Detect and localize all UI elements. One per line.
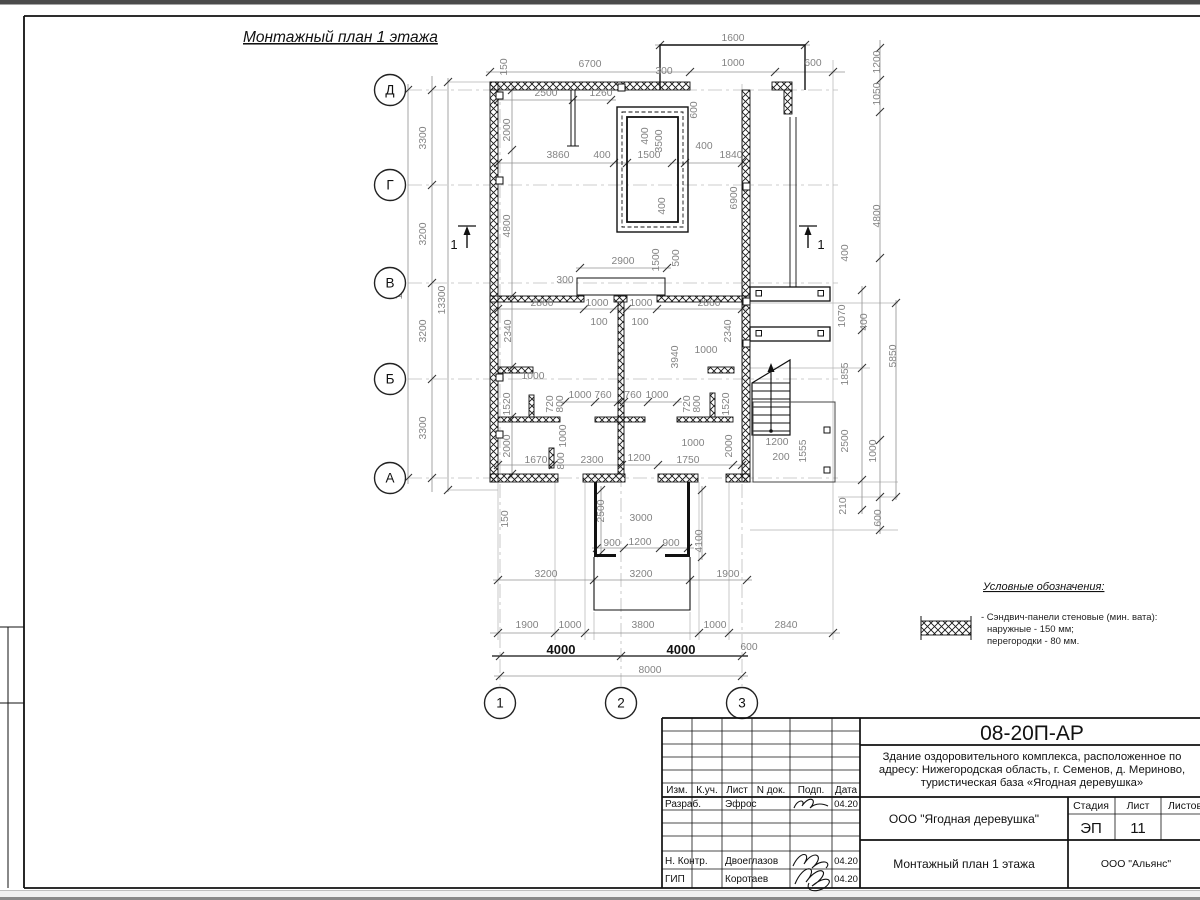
dim-label: 3200 [630, 569, 653, 580]
dim-label: 400 [657, 197, 668, 214]
axis-bubble-label: 2 [617, 696, 625, 711]
dim-label: 1600 [722, 33, 745, 44]
org-name: ООО "Ягодная деревушка" [889, 812, 1039, 826]
wall [658, 474, 698, 482]
dim-label: 1670 [525, 455, 548, 466]
stage-value: ЭП [1080, 820, 1102, 837]
dim-label: 1200 [766, 437, 789, 448]
wall [490, 82, 498, 482]
dim-label: 1050 [872, 82, 883, 105]
dim-label: 3500 [654, 129, 665, 152]
sheet-title: Монтажный план 1 этажа [893, 857, 1035, 871]
panel-joint-mark [496, 374, 503, 381]
dim-label: 400 [593, 150, 610, 161]
dim-label: 2900 [612, 256, 635, 267]
wall [726, 474, 750, 482]
dim-label: 2300 [581, 455, 604, 466]
contractor-name: ООО "Альянс" [1101, 858, 1171, 870]
wall [710, 393, 715, 417]
dim-label: 760 [594, 390, 611, 401]
dim-label: 600 [873, 509, 884, 526]
dim-label: 2500 [840, 429, 851, 452]
drawing-sheet: Монтажный план 1 этажа [0, 0, 1200, 900]
dim-label: 2000 [502, 118, 513, 141]
wall [549, 448, 554, 468]
panel-joint-mark [496, 92, 503, 99]
legend-line: - Сэндвич-панели стеновые (мин. вата): [981, 612, 1157, 623]
dim-label: 210 [838, 497, 849, 514]
wall [490, 474, 558, 482]
section-arrowhead [464, 226, 471, 235]
dim-label: 800 [692, 395, 703, 412]
dim-label: 3200 [418, 222, 429, 245]
dim-label: 3860 [547, 150, 570, 161]
dim-label: 3300 [418, 126, 429, 149]
dim-label: 2860 [698, 298, 721, 309]
dim-label: 300 [556, 275, 573, 286]
section-label: 1 [450, 237, 457, 252]
dim-label: 400 [859, 313, 870, 330]
axis-bubble-label: В [385, 276, 394, 291]
dim-label: 13300 [437, 285, 448, 314]
dim-label: 100 [631, 317, 648, 328]
dim-label: 4000 [547, 642, 576, 657]
tb-role: Разраб. [665, 798, 701, 810]
dim-label: 1200 [629, 537, 652, 548]
tb-col-header: Изм. [666, 785, 687, 796]
wall [677, 417, 733, 422]
panel-joint-mark [618, 84, 625, 91]
dim-label: 1000 [868, 439, 879, 462]
dim-label: 6700 [579, 59, 602, 70]
sheets-label: Листов [1168, 800, 1200, 812]
dim-label: 2000 [724, 434, 735, 457]
dim-label: 1000 [630, 298, 653, 309]
legend-line: наружные - 150 мм; [987, 624, 1074, 635]
dim-label: 4100 [694, 529, 705, 552]
dim-label: 2000 [502, 434, 513, 457]
dim-label: 1200 [628, 453, 651, 464]
tb-date: 04.20 [834, 799, 858, 810]
dim-label: 1000 [569, 390, 592, 401]
wall [708, 367, 734, 373]
dim-label: 760 [624, 390, 641, 401]
dim-label: 150 [499, 58, 510, 75]
dim-label: 4000 [667, 642, 696, 657]
signature [793, 855, 828, 869]
dim-label: 500 [671, 249, 682, 266]
legend-title: Условные обозначения: [982, 581, 1104, 593]
dim-label: 1000 [646, 390, 669, 401]
signatures [793, 799, 829, 891]
dim-label: 2340 [723, 319, 734, 342]
dim-label: 400 [640, 127, 651, 144]
wall [498, 417, 560, 422]
dim-label: 1000 [522, 371, 545, 382]
sheet-label: Лист [1127, 800, 1150, 812]
dim-label: 900 [603, 538, 620, 549]
axis-bubble-label: Б [386, 372, 395, 387]
dim-label: 4800 [502, 214, 513, 237]
dim-label: 6900 [729, 186, 740, 209]
legend-swatch [921, 621, 971, 635]
panel-joint-mark [743, 340, 750, 347]
panel-joint-mark [496, 177, 503, 184]
axis-bubble-label: 1 [496, 696, 504, 711]
tb-role: Н. Контр. [665, 856, 708, 867]
stairs [752, 360, 790, 435]
dim-label: 600 [804, 58, 821, 69]
tb-date: 04.20 [834, 874, 858, 885]
dim-label: 800 [555, 395, 566, 412]
section-label: 1 [817, 237, 824, 252]
dim-label: 300 [655, 66, 672, 77]
title-block: 08-20П-АР Здание оздоровительного компле… [662, 718, 1200, 891]
project-description-line: Здание оздоровительного комплекса, распо… [883, 751, 1182, 763]
wall [618, 302, 624, 474]
dim-label: 1260 [590, 88, 613, 99]
tb-col-header: Подп. [798, 785, 825, 796]
drawing-title: Монтажный план 1 этажа [243, 29, 438, 46]
panel-joint-mark [743, 298, 750, 305]
dim-label: 1000 [558, 424, 569, 447]
dim-label: 1000 [559, 620, 582, 631]
dim-label: 2500 [535, 88, 558, 99]
signature [794, 799, 828, 808]
dim-label: 1000 [586, 298, 609, 309]
wall [529, 395, 534, 417]
project-description-line: туристическая база «Ягодная деревушка» [921, 777, 1143, 789]
dimension-chains-layer [404, 40, 900, 680]
section-arrowhead [805, 226, 812, 235]
tb-role: ГИП [665, 874, 685, 885]
dim-label: 2340 [503, 319, 514, 342]
wall [583, 474, 625, 482]
dim-label: 1200 [872, 50, 883, 73]
dim-label: 4800 [872, 204, 883, 227]
legend: Условные обозначения: - Сэндвич-панели с… [921, 581, 1157, 647]
dim-label: 400 [695, 141, 712, 152]
dim-label: 1855 [840, 362, 851, 385]
dim-label: 3300 [418, 416, 429, 439]
doc-number: 08-20П-АР [980, 722, 1084, 745]
tb-name: Коротаев [725, 874, 768, 885]
dim-label: 1750 [677, 455, 700, 466]
dim-label: 1520 [721, 392, 732, 415]
dim-label: 1555 [798, 439, 809, 462]
legend-line: перегородки - 80 мм. [987, 636, 1079, 647]
wall [614, 296, 627, 302]
dim-label: 1500 [651, 248, 662, 271]
dim-label: 3200 [418, 319, 429, 342]
wall [784, 90, 792, 114]
dim-label: 1000 [682, 438, 705, 449]
tb-col-header: Лист [726, 785, 748, 796]
dim-label: 600 [689, 101, 700, 118]
dimension-labels-layer: 1600670010006003001502500126020006003860… [394, 33, 899, 676]
dim-label: 150 [500, 510, 511, 527]
axis-bubble-label: Д [385, 83, 394, 98]
tb-col-header: N док. [757, 785, 786, 796]
dim-label: 1000 [695, 345, 718, 356]
dim-label: 1900 [516, 620, 539, 631]
dim-label: 200 [772, 452, 789, 463]
dim-label: 2500 [596, 499, 607, 522]
wall [595, 417, 645, 422]
sheet-number: 11 [1130, 820, 1146, 837]
dim-label: 100 [590, 317, 607, 328]
dim-label: 400 [840, 244, 851, 261]
left-margin-stamp [0, 627, 24, 888]
axis-bubble-label: А [385, 471, 394, 486]
dim-label: 3200 [535, 569, 558, 580]
dim-label: 3940 [670, 345, 681, 368]
axis-bubble-label: Г [386, 178, 394, 193]
dim-label: 5850 [888, 344, 899, 367]
dim-label: 2840 [775, 620, 798, 631]
dim-label: 600 [740, 642, 757, 653]
stage-label: Стадия [1073, 800, 1109, 812]
dim-label: 1000 [704, 620, 727, 631]
dim-label: 8000 [639, 665, 662, 676]
dim-label: 1000 [722, 58, 745, 69]
tb-col-header: Дата [835, 785, 858, 796]
axis-bubble-label: 3 [738, 696, 746, 711]
dim-label: 800 [556, 452, 567, 469]
dim-label: 900 [662, 538, 679, 549]
tb-date: 04.20 [834, 856, 858, 867]
dim-label: 2860 [531, 298, 554, 309]
tb-name: Двоеглазов [725, 856, 778, 867]
wall [772, 82, 792, 90]
dim-label: 1070 [837, 304, 848, 327]
tb-name: Эфрос [725, 798, 757, 810]
wall [742, 90, 750, 482]
dim-label: 1900 [717, 569, 740, 580]
dim-label: 3800 [632, 620, 655, 631]
dim-label: 1840 [720, 150, 743, 161]
panel-joint-mark [743, 183, 750, 190]
dim-label: 3000 [630, 513, 653, 524]
dim-label: 1520 [502, 392, 513, 415]
project-description-line: адресу: Нижегородская область, г. Семено… [879, 764, 1185, 776]
tb-col-header: К.уч. [696, 785, 718, 796]
